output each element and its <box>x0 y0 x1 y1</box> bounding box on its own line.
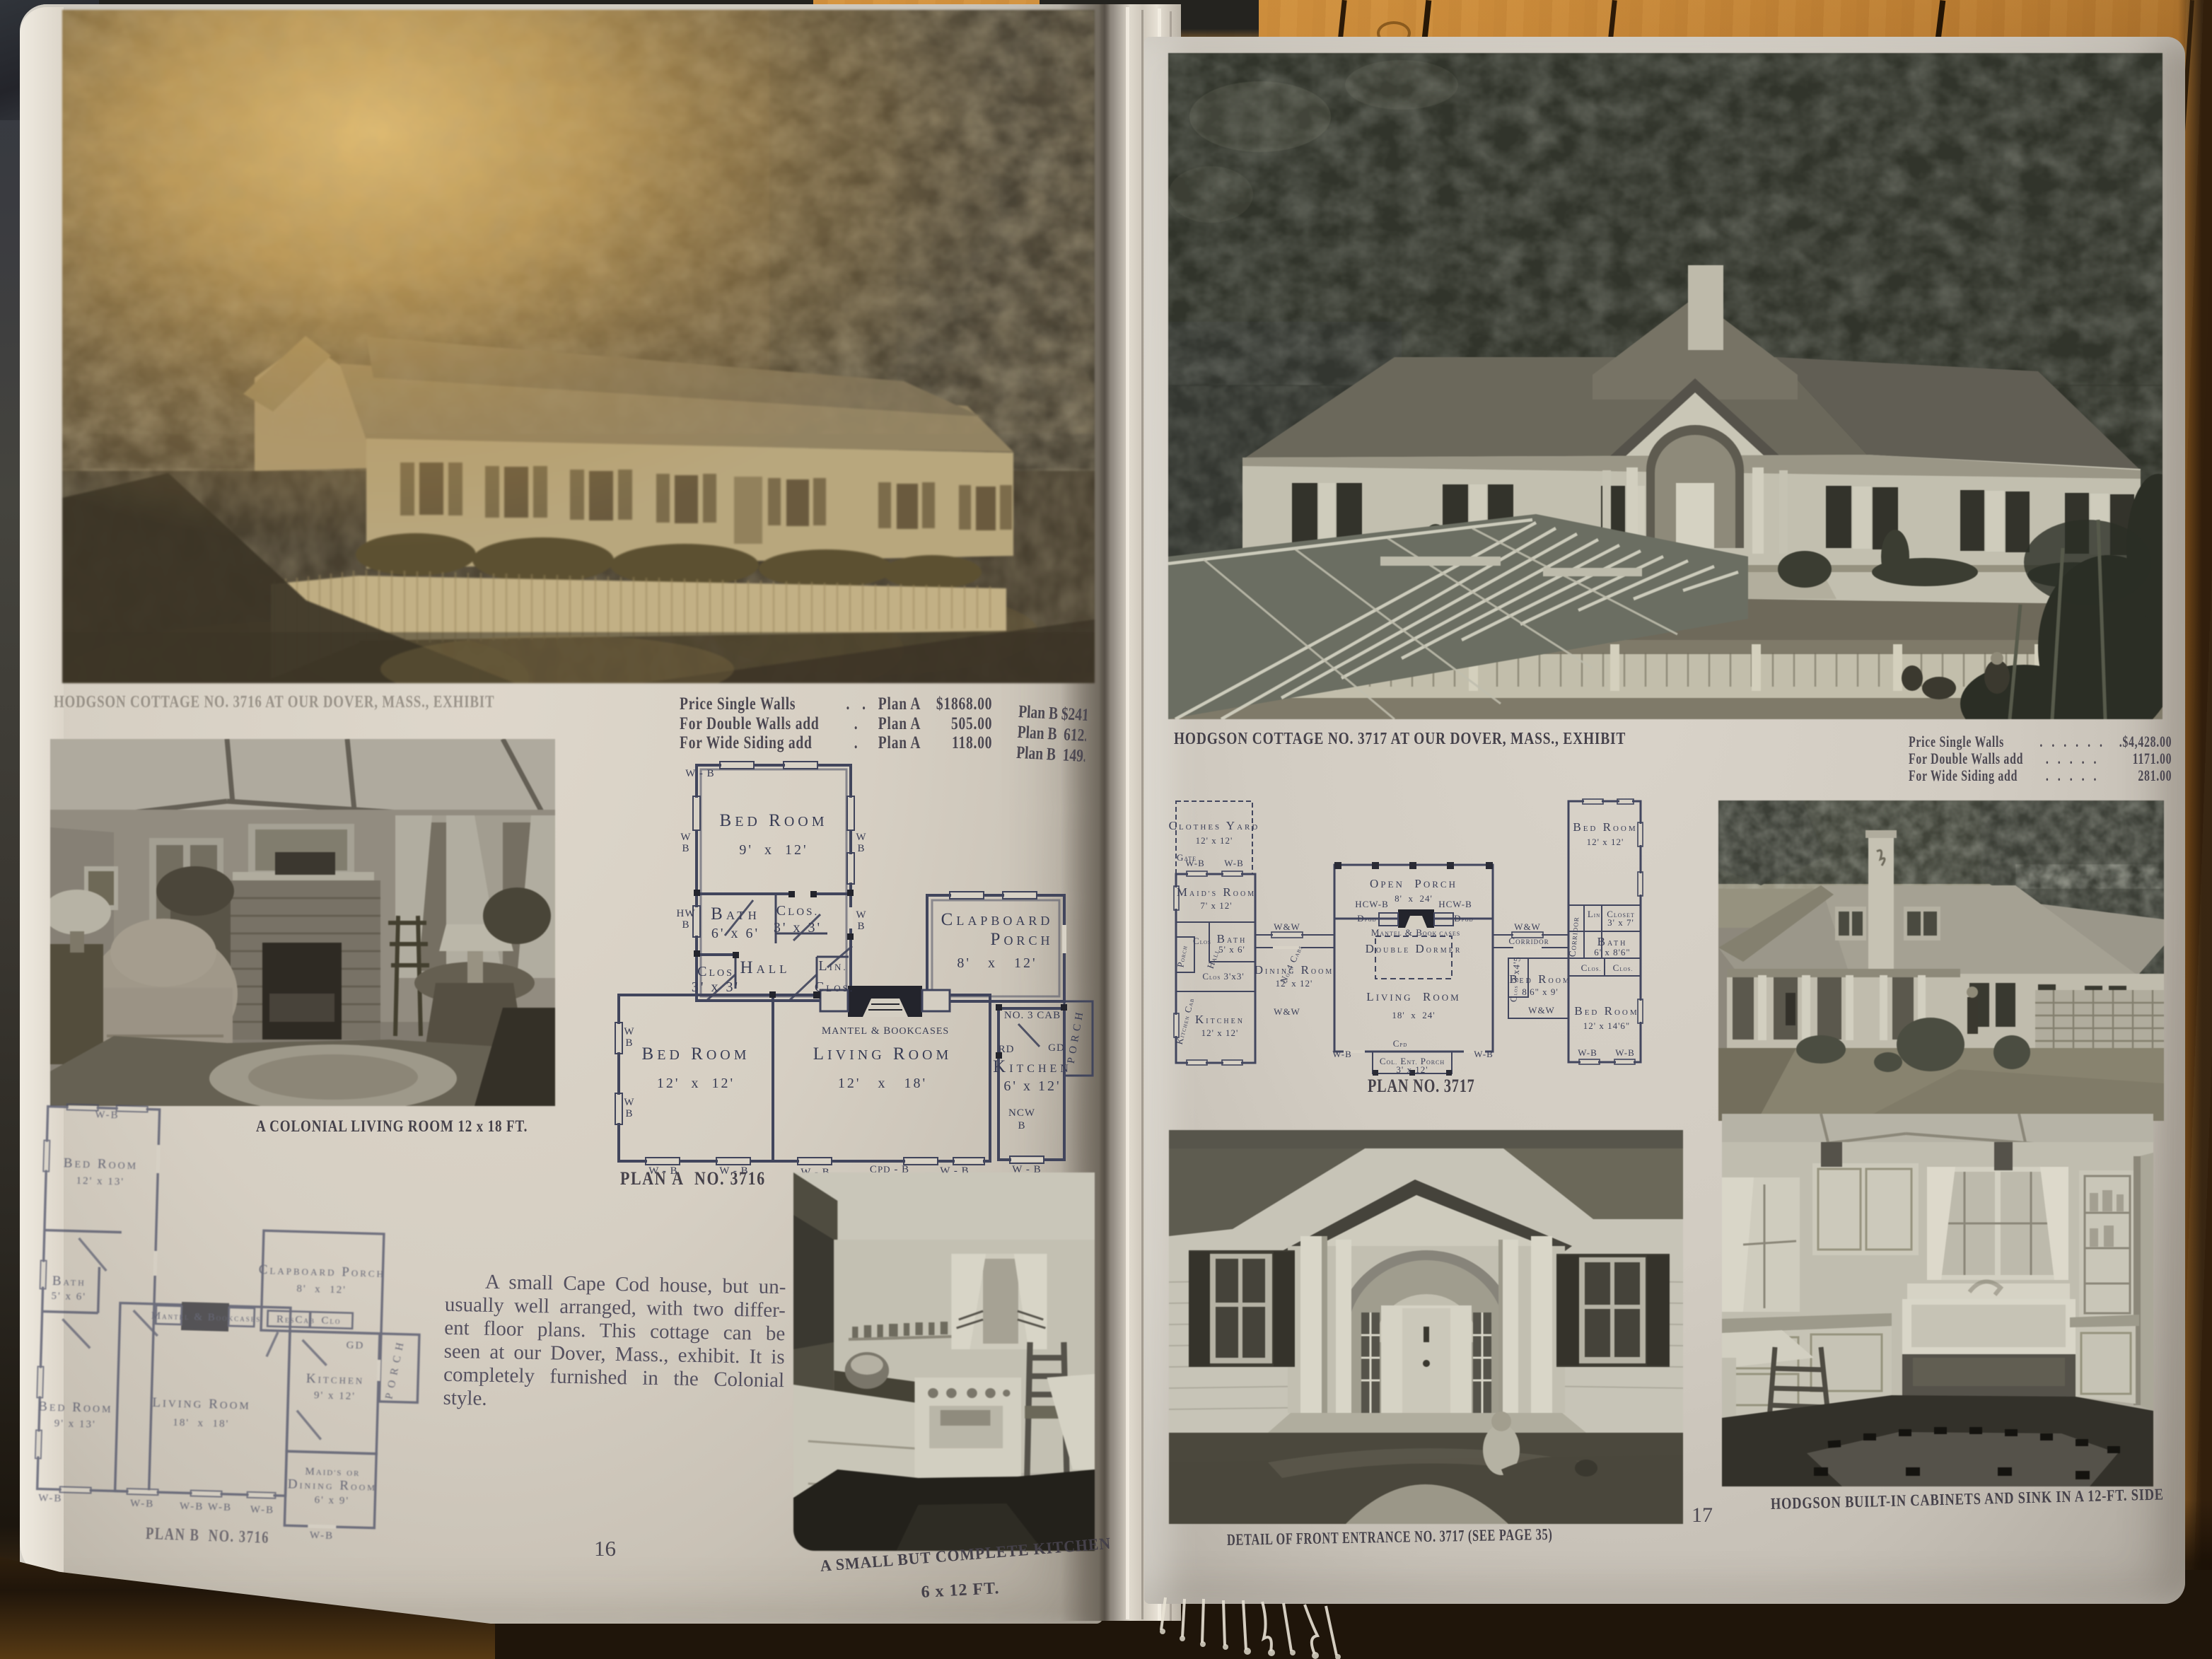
svg-text:DFGD: DFGD <box>1454 913 1473 924</box>
svg-text:NCW: NCW <box>1008 1107 1035 1119</box>
svg-text:RD: RD <box>999 1044 1015 1055</box>
svg-text:B: B <box>857 843 865 854</box>
svg-text:W-B: W-B <box>1474 1049 1494 1059</box>
svg-text:HW: HW <box>677 908 696 919</box>
svg-text:LIVING ROOM: LIVING ROOM <box>152 1395 251 1413</box>
svg-text:W-B: W-B <box>1615 1047 1635 1058</box>
svg-text:BED ROOM: BED ROOM <box>64 1156 139 1172</box>
svg-text:B: B <box>682 919 689 931</box>
svg-text:MANTEL & BOOKCASES: MANTEL & BOOKCASES <box>822 1025 949 1037</box>
svg-text:W-B: W-B <box>250 1504 275 1516</box>
svg-text:12' x 12': 12' x 12' <box>657 1076 735 1091</box>
svg-text:LIN.: LIN. <box>818 958 847 974</box>
svg-text:BED ROOM: BED ROOM <box>1574 1004 1638 1018</box>
svg-text:HCW-B: HCW-B <box>1355 899 1389 909</box>
svg-text:7' x 12': 7' x 12' <box>1200 900 1232 911</box>
svg-text:9' x 12': 9' x 12' <box>314 1390 356 1402</box>
svg-text:HALL: HALL <box>740 958 790 977</box>
svg-text:8'6" x 9': 8'6" x 9' <box>1522 986 1559 997</box>
svg-text:KITCHEN: KITCHEN <box>993 1057 1072 1076</box>
svg-text:9' x 13': 9' x 13' <box>54 1418 96 1431</box>
svg-text:6' x 8'6": 6' x 8'6" <box>1594 947 1631 957</box>
svg-text:W-B: W-B <box>1185 858 1205 868</box>
svg-text:BED ROOM: BED ROOM <box>642 1044 750 1064</box>
svg-text:W: W <box>856 832 866 843</box>
svg-text:CLAPBOARD: CLAPBOARD <box>941 910 1054 929</box>
svg-text:PORCH: PORCH <box>991 930 1054 949</box>
svg-text:5' x 6': 5' x 6' <box>1218 944 1245 955</box>
svg-text:3' x 3': 3' x 3' <box>774 920 822 936</box>
svg-text:12' x 14'6": 12' x 14'6" <box>1583 1020 1631 1031</box>
svg-text:12' x 12': 12' x 12' <box>1196 835 1233 846</box>
svg-text:12' x 12': 12' x 12' <box>1276 978 1313 989</box>
svg-text:KITCHEN: KITCHEN <box>306 1371 365 1387</box>
svg-text:GD: GD <box>1048 1042 1065 1054</box>
svg-text:5' x 6': 5' x 6' <box>51 1291 86 1303</box>
svg-text:12' x 13': 12' x 13' <box>76 1175 124 1188</box>
svg-text:CLAPBOARD PORCH: CLAPBOARD PORCH <box>259 1262 386 1281</box>
svg-text:NO. 3 CAB: NO. 3 CAB <box>1004 1010 1061 1021</box>
svg-text:GD: GD <box>346 1340 364 1352</box>
svg-text:W - B: W - B <box>685 768 714 779</box>
svg-text:CLOS.: CLOS. <box>1613 962 1634 973</box>
svg-text:CLOS.: CLOS. <box>1581 962 1602 973</box>
svg-text:W: W <box>856 909 866 921</box>
svg-text:LIVING ROOM: LIVING ROOM <box>1366 990 1460 1003</box>
svg-text:W: W <box>624 1097 634 1108</box>
svg-text:W-B W-B: W-B W-B <box>180 1501 233 1513</box>
svg-text:CLOS.: CLOS. <box>776 903 819 919</box>
svg-text:W-B: W-B <box>95 1109 120 1121</box>
svg-text:B: B <box>1018 1120 1025 1131</box>
svg-text:B: B <box>625 1037 633 1049</box>
svg-text:MAID'S OR: MAID'S OR <box>305 1466 360 1479</box>
svg-text:LIVING ROOM: LIVING ROOM <box>813 1044 953 1064</box>
svg-text:HCW-B: HCW-B <box>1438 899 1472 909</box>
svg-text:8' x 12': 8' x 12' <box>957 955 1037 971</box>
svg-text:LIN: LIN <box>1588 909 1600 919</box>
svg-text:P O R C H: P O R C H <box>383 1340 406 1400</box>
svg-text:W: W <box>680 832 691 843</box>
svg-text:HALL: HALL <box>1205 947 1222 970</box>
svg-text:6' x 6': 6' x 6' <box>711 926 759 941</box>
svg-text:W-B: W-B <box>1578 1047 1597 1058</box>
svg-text:CLOS.: CLOS. <box>815 979 854 995</box>
svg-text:W&W: W&W <box>1528 1005 1555 1015</box>
svg-text:P O R C H: P O R C H <box>1066 1011 1086 1064</box>
svg-text:18' x 24': 18' x 24' <box>1392 1010 1435 1020</box>
svg-text:OPEN PORCH: OPEN PORCH <box>1370 877 1457 890</box>
svg-text:12' x 12': 12' x 12' <box>1587 837 1624 847</box>
svg-text:6' x 9': 6' x 9' <box>314 1494 349 1506</box>
svg-text:18' x 18': 18' x 18' <box>173 1417 229 1430</box>
svg-text:CLOS 3'x4'5: CLOS 3'x4'5 <box>1508 956 1523 1003</box>
svg-text:W-B: W-B <box>1332 1049 1352 1059</box>
svg-text:B: B <box>682 843 689 854</box>
svg-text:BED ROOM: BED ROOM <box>720 811 828 830</box>
svg-text:W: W <box>624 1026 634 1037</box>
svg-text:KITCHEN: KITCHEN <box>1195 1013 1245 1026</box>
svg-text:MAID'S ROOM: MAID'S ROOM <box>1177 885 1256 899</box>
svg-text:CLO: CLO <box>321 1315 341 1327</box>
svg-text:12' x 18': 12' x 18' <box>838 1076 927 1091</box>
svg-text:W&W: W&W <box>1514 921 1541 932</box>
svg-text:BATH: BATH <box>711 904 760 924</box>
svg-text:CPD: CPD <box>1393 1038 1408 1049</box>
svg-text:9' x 12': 9' x 12' <box>739 842 808 858</box>
svg-text:BATH: BATH <box>52 1274 87 1289</box>
svg-text:DINING ROOM: DINING ROOM <box>288 1477 378 1494</box>
svg-text:6' x 12': 6' x 12' <box>1003 1078 1061 1094</box>
svg-text:W-B: W-B <box>310 1530 334 1542</box>
svg-text:DFGD: DFGD <box>1357 913 1376 924</box>
svg-text:8' x 24': 8' x 24' <box>1395 893 1433 904</box>
svg-text:12' x 12': 12' x 12' <box>1201 1028 1239 1038</box>
svg-text:CLOTHES YARD: CLOTHES YARD <box>1169 819 1260 832</box>
svg-text:3' x 3': 3' x 3' <box>692 979 740 995</box>
svg-text:DOUBLE DORMER: DOUBLE DORMER <box>1366 942 1462 955</box>
svg-text:W-B: W-B <box>130 1498 155 1510</box>
svg-text:3' x 12': 3' x 12' <box>1396 1064 1428 1075</box>
svg-text:BED ROOM: BED ROOM <box>1573 820 1637 834</box>
svg-text:W-B: W-B <box>38 1492 63 1504</box>
svg-text:B: B <box>857 921 865 932</box>
svg-text:CLOS: CLOS <box>697 964 734 979</box>
svg-text:CLOS 3'x3': CLOS 3'x3' <box>1202 971 1244 982</box>
svg-text:8' x 12': 8' x 12' <box>296 1283 347 1296</box>
svg-text:MANTEL & BOOK CASES: MANTEL & BOOK CASES <box>1371 927 1460 938</box>
svg-text:W&W: W&W <box>1274 921 1300 932</box>
svg-text:BED ROOM: BED ROOM <box>38 1399 113 1416</box>
svg-text:W&W: W&W <box>1274 1006 1300 1017</box>
svg-text:B: B <box>625 1108 633 1119</box>
svg-text:W-B: W-B <box>1224 858 1244 868</box>
svg-text:3' x 7': 3' x 7' <box>1607 917 1634 928</box>
